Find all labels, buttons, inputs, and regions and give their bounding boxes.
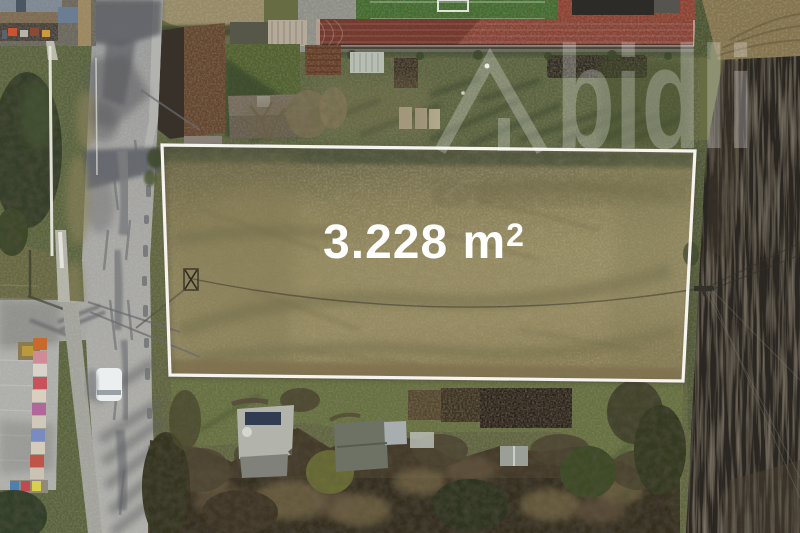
svg-text:3.228 m2: 3.228 m2 <box>323 216 525 269</box>
svg-text:bidli: bidli <box>556 17 754 180</box>
